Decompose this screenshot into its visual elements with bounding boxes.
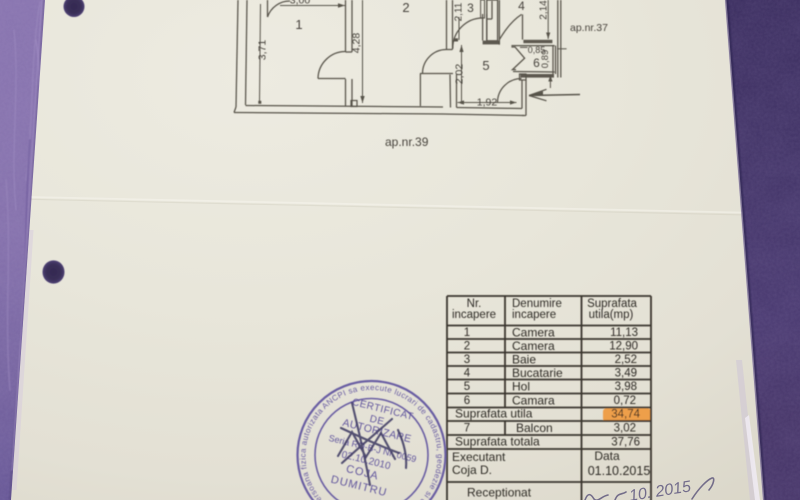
svg-text:34,74: 34,74 xyxy=(611,409,640,421)
svg-text:Suprafata totala: Suprafata totala xyxy=(455,435,540,449)
svg-text:2,14: 2,14 xyxy=(539,0,550,20)
svg-text:1,92: 1,92 xyxy=(477,97,498,109)
svg-text:3: 3 xyxy=(467,1,474,15)
svg-text:incapere: incapere xyxy=(512,309,556,321)
svg-text:3,02: 3,02 xyxy=(614,423,636,435)
svg-text:0,85: 0,85 xyxy=(528,45,546,55)
svg-text:3,00: 3,00 xyxy=(290,0,311,7)
svg-text:Executant: Executant xyxy=(452,450,506,464)
svg-text:2,52: 2,52 xyxy=(615,354,637,366)
svg-text:5: 5 xyxy=(464,381,470,393)
svg-text:7: 7 xyxy=(464,423,470,435)
svg-text:4: 4 xyxy=(464,368,471,380)
svg-text:2,11: 2,11 xyxy=(454,2,465,21)
svg-text:01.10.2015: 01.10.2015 xyxy=(588,464,651,478)
svg-text:1: 1 xyxy=(295,17,302,32)
svg-text:Camera: Camera xyxy=(512,339,555,353)
svg-text:utila(mp): utila(mp) xyxy=(589,309,634,321)
svg-text:3,98: 3,98 xyxy=(615,381,637,393)
svg-text:0,72: 0,72 xyxy=(614,395,636,407)
svg-text:Suprafata utila: Suprafata utila xyxy=(455,407,533,421)
svg-text:2,02: 2,02 xyxy=(454,64,466,85)
svg-text:Camara: Camara xyxy=(512,394,555,408)
svg-text:4,28: 4,28 xyxy=(351,33,363,54)
svg-text:2: 2 xyxy=(464,341,470,353)
svg-text:5: 5 xyxy=(482,58,489,73)
svg-text:Hol: Hol xyxy=(512,380,530,394)
svg-text:1: 1 xyxy=(464,327,470,339)
svg-text:11,13: 11,13 xyxy=(610,327,638,339)
svg-text:6: 6 xyxy=(464,395,470,407)
svg-text:Data: Data xyxy=(594,449,620,463)
svg-text:12,90: 12,90 xyxy=(609,341,638,353)
svg-text:3,49: 3,49 xyxy=(615,368,637,380)
svg-text:2: 2 xyxy=(402,0,409,15)
svg-text:3: 3 xyxy=(464,354,470,366)
svg-text:ap.nr.39: ap.nr.39 xyxy=(385,135,429,149)
svg-text:ap.nr.37: ap.nr.37 xyxy=(570,22,608,34)
svg-text:Receptionat: Receptionat xyxy=(467,486,532,500)
svg-text:Baie: Baie xyxy=(512,353,536,367)
svg-text:4: 4 xyxy=(518,0,525,13)
svg-text:3,71: 3,71 xyxy=(257,40,269,61)
svg-text:37,76: 37,76 xyxy=(611,437,640,449)
svg-text:Coja D.: Coja D. xyxy=(452,463,492,477)
svg-text:Balcon: Balcon xyxy=(516,421,553,435)
svg-text:Camera: Camera xyxy=(512,326,555,340)
svg-text:incapere: incapere xyxy=(452,309,496,321)
svg-text:Bucatarie: Bucatarie xyxy=(512,366,563,380)
